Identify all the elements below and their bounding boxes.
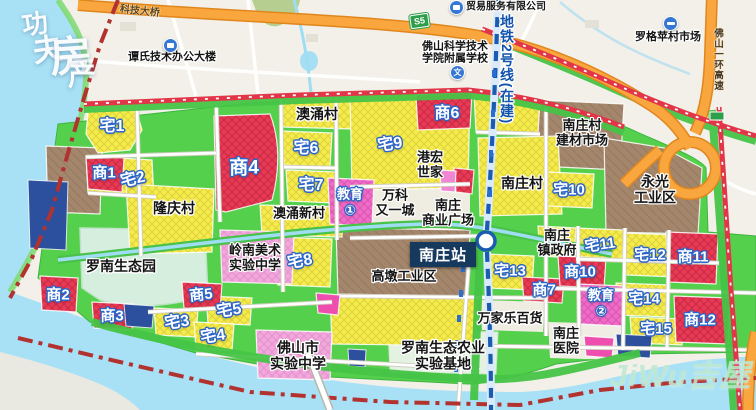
ring-expressway-label: 佛山一环高速	[710, 28, 724, 91]
metro-line-2-label: 地铁2号线(在建)	[500, 14, 514, 124]
map-canvas[interactable]: 宅1商1宅2商4宅6宅7宅9商6宅8商5宅5宅3宅4商2商3宅10宅11宅12商…	[0, 0, 756, 410]
base-map	[0, 0, 756, 410]
s5-route-shield: S5	[409, 13, 430, 30]
nanzhuang-station-label: 南庄站	[410, 242, 476, 267]
jiwu-watermark: JiWu吉屋	[610, 350, 752, 395]
